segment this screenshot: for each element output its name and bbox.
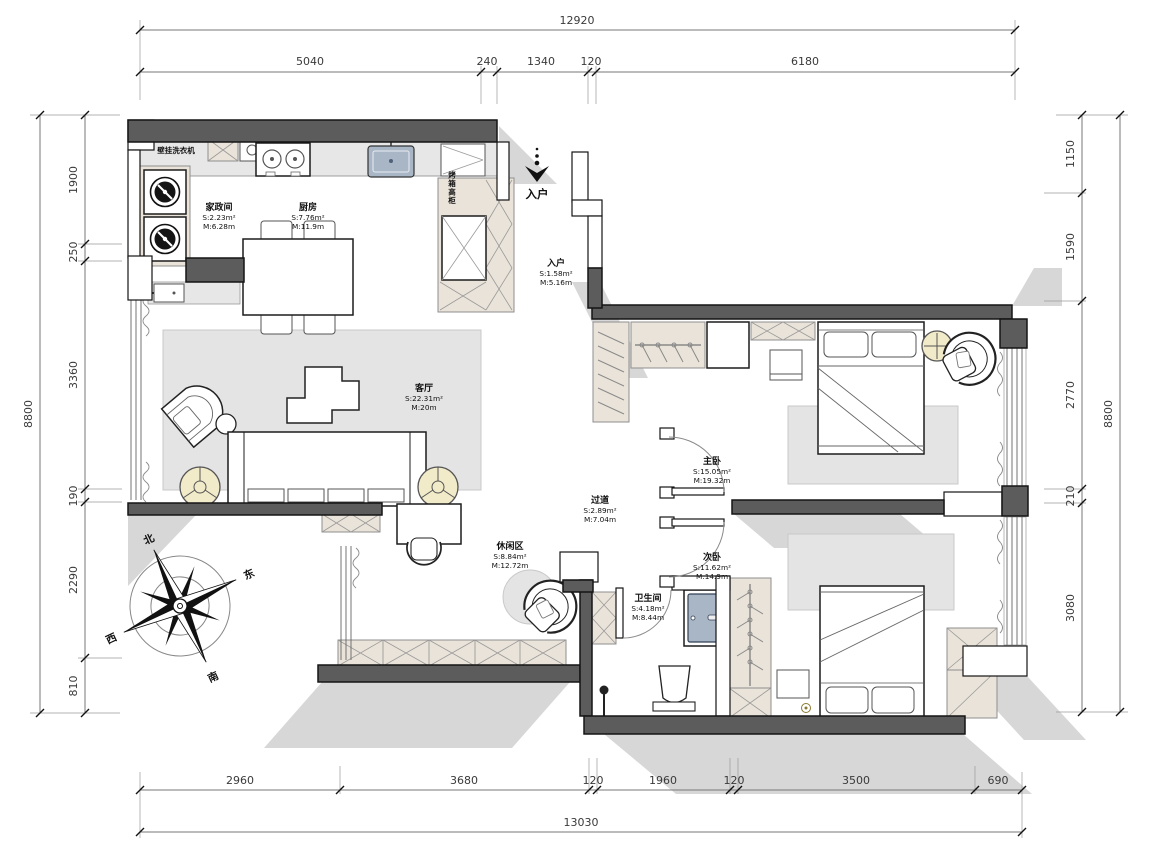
dim-left-seg-0: 1900 xyxy=(67,166,80,194)
master-corner xyxy=(922,324,1005,394)
leisure-name: 休闲区 xyxy=(495,540,523,552)
kitchen-sink xyxy=(368,140,414,177)
washer-annotation: 壁挂洗衣机 xyxy=(157,145,195,155)
entry-arrow-label: 入户 xyxy=(526,187,549,201)
sofa xyxy=(228,432,426,506)
floor-plan-svg: 入户 家政间 S:2.23m² M:6.28m 厨房 S:7.76m² M:11… xyxy=(0,0,1150,848)
bathroom-area: S:4.18m² xyxy=(631,604,664,613)
toilet xyxy=(653,666,695,711)
room-label-entry: 入户 S:1.58m² M:5.16m xyxy=(539,257,572,287)
master-top-wall xyxy=(592,305,1012,319)
dim-bottom-seg-4: 120 xyxy=(724,774,745,787)
dim-right-seg-0: 1150 xyxy=(1064,140,1077,168)
dim-top-seg-4: 6180 xyxy=(791,55,819,68)
dim-right-seg-2: 2770 xyxy=(1064,381,1077,409)
compass-east-label: 东 xyxy=(242,566,257,582)
hallway-perimeter: M:7.04m xyxy=(584,515,616,524)
dressing-table xyxy=(770,350,802,380)
room-label-master: 主卧 S:15.05m² M:19.32m xyxy=(693,455,731,485)
side-table-right xyxy=(418,467,458,507)
dim-top-total: 12920 xyxy=(560,14,595,27)
bedroom-divider-wall xyxy=(732,500,944,514)
dim-bottom-seg-2: 120 xyxy=(583,774,604,787)
kitchen-area: S:7.76m² xyxy=(291,213,324,222)
master-perimeter: M:19.32m xyxy=(694,476,731,485)
ottoman xyxy=(216,414,236,434)
kitchen-name: 厨房 xyxy=(299,201,317,213)
leisure-perimeter: M:12.72m xyxy=(492,561,529,570)
dim-bottom-seg-3: 1960 xyxy=(649,774,677,787)
room-label-second: 次卧 S:11.62m² M:14.9m xyxy=(693,551,731,581)
living-area: S:22.31m² xyxy=(405,394,443,403)
dim-left-total: 8800 xyxy=(22,400,35,428)
room-label-leisure: 休闲区 S:8.84m² M:12.72m xyxy=(492,540,529,570)
master-closets xyxy=(593,322,815,422)
living-left-window xyxy=(131,286,149,502)
compass: 北 南 东 西 xyxy=(73,499,290,717)
dim-left-seg-3: 190 xyxy=(67,486,80,507)
dining-table xyxy=(243,239,353,315)
dim-right-seg-4: 3080 xyxy=(1064,594,1077,622)
living-name: 客厅 xyxy=(414,382,433,394)
master-name: 主卧 xyxy=(703,455,721,467)
dim-top-seg-1: 240 xyxy=(477,55,498,68)
second-name: 次卧 xyxy=(703,551,721,563)
dim-right-seg-3: 210 xyxy=(1064,486,1077,507)
dim-left-seg-1: 250 xyxy=(67,242,80,263)
living-bottom-wall xyxy=(128,503,382,515)
top-wall xyxy=(128,120,497,142)
small-appliance xyxy=(154,284,184,302)
dim-bottom-seg-5: 3500 xyxy=(842,774,870,787)
entry-perimeter: M:5.16m xyxy=(540,278,572,287)
master-bed xyxy=(818,322,924,454)
second-right-window xyxy=(998,517,1027,645)
master-area: S:15.05m² xyxy=(693,467,731,476)
dim-bottom-seg-0: 2960 xyxy=(226,774,254,787)
dim-right-seg-1: 1590 xyxy=(1064,233,1077,261)
dim-left-seg-2: 3360 xyxy=(67,361,80,389)
oven-cabinet-annotation: 烤箱高柜 xyxy=(447,170,456,206)
dim-top-seg-0: 5040 xyxy=(296,55,324,68)
dim-right-total: 8800 xyxy=(1102,400,1115,428)
stove xyxy=(256,143,310,176)
entry-area: S:1.58m² xyxy=(539,269,572,278)
kitchen-perimeter: M:11.9m xyxy=(292,222,324,231)
living-perimeter: M:20m xyxy=(411,403,436,412)
room-label-hallway: 过道 S:2.89m² M:7.04m xyxy=(583,494,616,524)
desk-chair xyxy=(407,538,441,565)
leisure-furniture xyxy=(322,504,587,666)
hallway-area: S:2.89m² xyxy=(583,506,616,515)
side-table-left xyxy=(180,467,220,507)
second-bed xyxy=(820,586,924,720)
room-label-bathroom: 卫生间 S:4.18m² M:8.44m xyxy=(631,592,664,622)
kitchen-island xyxy=(148,282,240,304)
bathroom-name: 卫生间 xyxy=(634,592,661,604)
dim-bottom-seg-6: 690 xyxy=(988,774,1009,787)
master-right-window xyxy=(998,348,1027,486)
second-bedroom-furniture xyxy=(729,578,997,720)
second-perimeter: M:14.9m xyxy=(696,572,728,581)
floor-plan-page: 入户 家政间 S:2.23m² M:6.28m 厨房 S:7.76m² M:11… xyxy=(0,0,1150,848)
hallway-name: 过道 xyxy=(591,494,609,506)
dim-left-seg-4: 2290 xyxy=(67,566,80,594)
dim-top-seg-2: 1340 xyxy=(527,55,555,68)
bedside-desk xyxy=(777,670,809,698)
compass-south-label: 南 xyxy=(206,669,221,685)
dim-bottom-total: 13030 xyxy=(564,816,599,829)
entry-name: 入户 xyxy=(546,257,565,269)
room-label-kitchen: 厨房 S:7.76m² M:11.9m xyxy=(291,201,324,231)
leisure-bottom-wall xyxy=(318,665,580,682)
bathroom-perimeter: M:8.44m xyxy=(632,613,664,622)
compass-west-label: 西 xyxy=(104,631,119,647)
laundry-name: 家政间 xyxy=(205,201,232,213)
dim-bottom-seg-1: 3680 xyxy=(450,774,478,787)
bottom-wall xyxy=(584,716,965,734)
laundry-area: S:2.23m² xyxy=(202,213,235,222)
room-label-laundry: 家政间 S:2.23m² M:6.28m xyxy=(202,201,235,231)
dim-top-seg-3: 120 xyxy=(581,55,602,68)
second-area: S:11.62m² xyxy=(693,563,731,572)
leisure-area: S:8.84m² xyxy=(493,552,526,561)
dim-left-seg-5: 810 xyxy=(67,676,80,697)
dining-set xyxy=(243,221,353,334)
laundry-perimeter: M:6.28m xyxy=(203,222,235,231)
